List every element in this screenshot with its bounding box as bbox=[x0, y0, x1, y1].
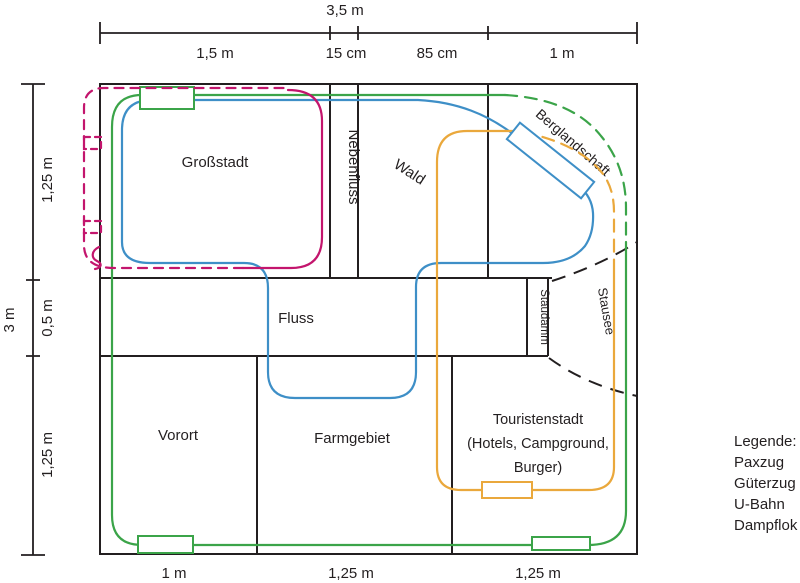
station-dampflok bbox=[482, 482, 532, 498]
dim-total-height: 3 m bbox=[1, 307, 18, 332]
legend-item-gueterzug: Güterzug bbox=[734, 475, 796, 492]
dim-top-seg-0: 1,5 m bbox=[196, 45, 234, 62]
track-plan-diagram: 3,5 m 1,5 m 15 cm 85 cm 1 m 3 m 1,25 m 0… bbox=[0, 0, 800, 583]
track-ubahn-tunnel bbox=[84, 88, 288, 268]
top-ruler: 3,5 m 1,5 m 15 cm 85 cm 1 m bbox=[100, 2, 637, 62]
dim-bottom-seg-0: 1 m bbox=[161, 565, 186, 582]
dim-total-width: 3,5 m bbox=[326, 2, 364, 19]
dim-left-seg-2: 1,25 m bbox=[39, 432, 56, 478]
stausee-shore-upper bbox=[552, 242, 637, 281]
dim-top-seg-2: 85 cm bbox=[417, 45, 458, 62]
dim-bottom-seg-1: 1,25 m bbox=[328, 565, 374, 582]
legend: Legende: Paxzug Güterzug U-Bahn Dampflok bbox=[734, 433, 798, 534]
legend-item-dampflok: Dampflok bbox=[734, 517, 798, 534]
track-plan-page: 3,5 m 1,5 m 15 cm 85 cm 1 m 3 m 1,25 m 0… bbox=[0, 0, 800, 583]
station-berglandschaft bbox=[507, 123, 594, 199]
legend-title: Legende: bbox=[734, 433, 797, 450]
track-ubahn-group bbox=[84, 88, 322, 269]
station-grossstadt bbox=[140, 87, 194, 109]
region-label-grossstadt: Großstadt bbox=[182, 154, 250, 171]
stausee-shore-lower bbox=[549, 358, 637, 396]
left-ruler: 3 m 1,25 m 0,5 m 1,25 m bbox=[1, 84, 56, 555]
top-ruler-line bbox=[100, 22, 637, 44]
legend-item-ubahn: U-Bahn bbox=[734, 496, 785, 513]
region-label-farmgebiet: Farmgebiet bbox=[314, 430, 391, 447]
ubahn-underground-stop-1 bbox=[84, 137, 101, 149]
dim-top-seg-1: 15 cm bbox=[326, 45, 367, 62]
region-label-vorort: Vorort bbox=[158, 427, 199, 444]
dim-left-seg-1: 0,5 m bbox=[39, 299, 56, 337]
bottom-ruler: 1 m 1,25 m 1,25 m bbox=[161, 565, 560, 582]
region-label-touristenstadt-3: Burger) bbox=[514, 460, 562, 476]
region-label-staudamm: Staudamm bbox=[538, 289, 550, 345]
region-label-fluss: Fluss bbox=[278, 310, 314, 327]
track-ubahn-solid bbox=[243, 90, 322, 268]
region-label-nebenfluss: Nebenfluss bbox=[345, 129, 362, 204]
dim-bottom-seg-2: 1,25 m bbox=[515, 565, 561, 582]
legend-item-paxzug: Paxzug bbox=[734, 454, 784, 471]
region-label-wald: Wald bbox=[391, 156, 428, 189]
station-vorort bbox=[138, 536, 193, 553]
dim-top-seg-3: 1 m bbox=[549, 45, 574, 62]
dim-left-seg-0: 1,25 m bbox=[39, 157, 56, 203]
station-touristenstadt-sued bbox=[532, 537, 590, 550]
ubahn-underground-stop-2 bbox=[84, 221, 101, 233]
region-label-touristenstadt-2: (Hotels, Campground, bbox=[467, 436, 609, 452]
region-label-touristenstadt-1: Touristenstadt bbox=[493, 412, 583, 428]
